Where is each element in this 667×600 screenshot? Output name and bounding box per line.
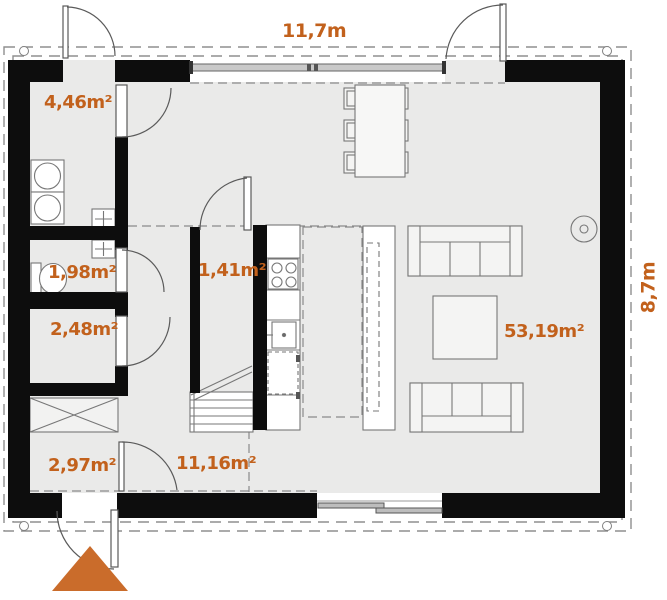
wood-stove-icon	[571, 216, 597, 242]
wardrobe-icon	[30, 398, 118, 432]
room-area-utility: 4,46m²	[44, 94, 112, 112]
dimension-height-label: 8,7m	[640, 261, 659, 315]
sofa	[410, 383, 523, 432]
kitchen-island	[363, 226, 395, 430]
room-area-storage: 2,48m²	[50, 321, 118, 339]
sofa	[408, 226, 522, 276]
coffee-table	[433, 296, 497, 359]
floor-plan-drawing	[0, 0, 667, 600]
room-area-hall: 11,16m²	[176, 455, 256, 473]
floor-plan: 11,7m 8,7m 4,46m² 1,98m² 2,48m² 1,41m² 2…	[0, 0, 667, 600]
room-area-entry: 2,97m²	[48, 457, 116, 475]
door-utility-exterior	[63, 6, 115, 58]
dining-table	[355, 85, 405, 177]
stove-icon	[268, 259, 298, 289]
washing-machine-icon	[31, 160, 64, 224]
sliding-door	[317, 493, 442, 518]
dimension-width-label: 11,7m	[282, 22, 346, 41]
window	[189, 60, 446, 82]
room-area-wc: 1,98m²	[48, 264, 116, 282]
room-area-living: 53,19m²	[504, 323, 584, 341]
door-living-exterior	[446, 4, 506, 61]
room-area-pantry: 1,41m²	[198, 262, 266, 280]
